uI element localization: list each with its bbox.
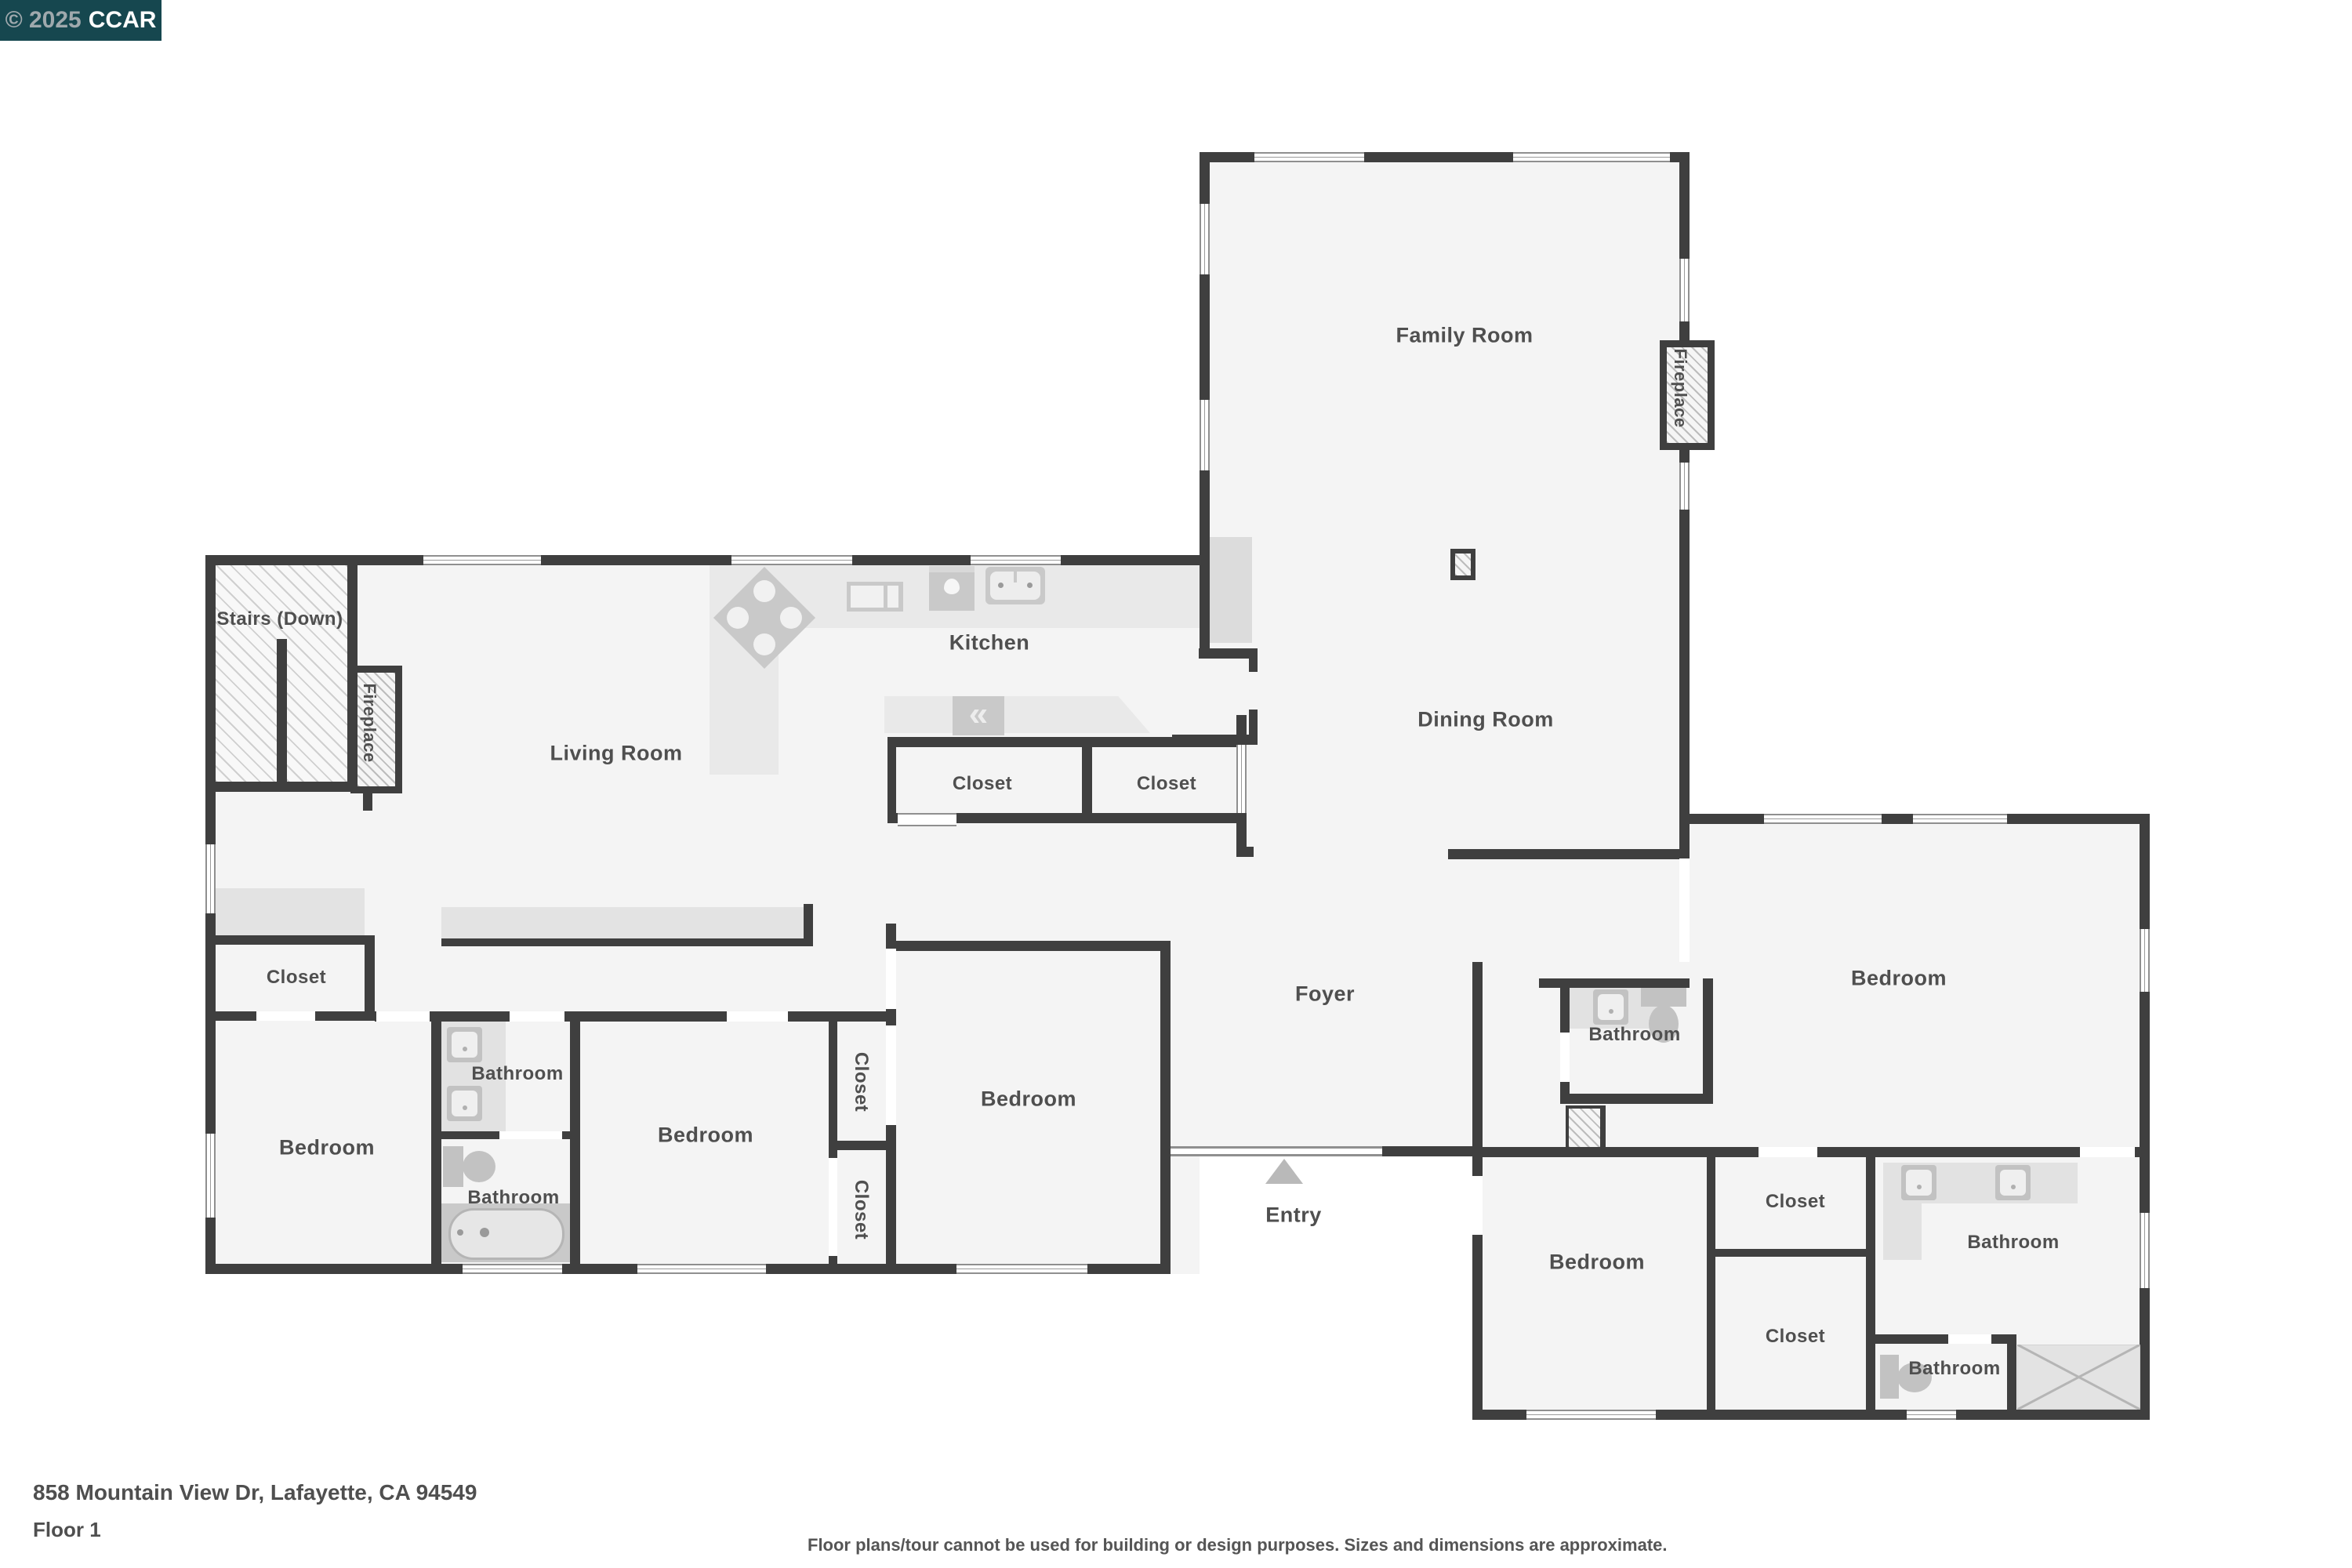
refrigerator-icon <box>1210 537 1252 643</box>
sink-icon <box>1995 1165 2031 1200</box>
wall <box>887 737 896 823</box>
room-label-closet-v1: Closet <box>850 1052 872 1112</box>
wall <box>570 1011 580 1274</box>
wall <box>2007 1334 2016 1410</box>
room-label-foyer: Foyer <box>1295 982 1355 1007</box>
microwave-icon <box>847 582 903 612</box>
room-label-bedroom-center: Bedroom <box>981 1087 1076 1112</box>
sink-icon <box>1901 1165 1936 1200</box>
room-label-dining-room: Dining Room <box>1417 708 1553 732</box>
room-label-stairs: Stairs (Down) <box>216 608 343 630</box>
wall <box>365 935 375 1021</box>
chase-hatch <box>1566 1105 1603 1151</box>
room-label-closet-r1: Closet <box>1766 1191 1825 1213</box>
room-label-closet-left: Closet <box>267 967 326 989</box>
wall <box>1382 1146 1482 1156</box>
watermark-copyright: © 2025 <box>5 7 82 34</box>
shower-icon <box>2017 1345 2140 1410</box>
entry-threshold <box>1171 1146 1382 1156</box>
room-label-closet-hall-2: Closet <box>1137 773 1196 795</box>
watermark-badge: © 2025 CCAR <box>0 0 162 41</box>
room-label-bedroom-right: Bedroom <box>1851 967 1947 991</box>
wall <box>2140 814 2150 1419</box>
wall <box>431 1011 441 1274</box>
wall <box>205 782 358 792</box>
wall <box>1715 1249 1875 1257</box>
range-hood-chevrons-icon: « <box>953 696 1004 735</box>
wall <box>887 737 1247 747</box>
wall <box>1236 847 1254 857</box>
island-counter <box>884 696 1150 733</box>
sink-icon <box>447 1086 482 1121</box>
bathtub-basin <box>448 1208 564 1260</box>
room-label-closet-r2: Closet <box>1766 1326 1825 1348</box>
room-label-bathroom-small: Bathroom <box>1908 1358 2000 1380</box>
floor-foyer <box>813 823 1483 1146</box>
label-fireplace-family: Fireplace <box>1670 348 1690 427</box>
wall <box>804 904 813 946</box>
room-label-closet-hall-1: Closet <box>953 773 1012 795</box>
entry-direction-icon <box>1265 1159 1303 1184</box>
sink-icon <box>447 1027 482 1062</box>
room-label-bedroom-left: Bedroom <box>279 1136 375 1160</box>
wall <box>1448 849 1690 859</box>
wall <box>886 941 1171 951</box>
room-label-closet-v2: Closet <box>850 1180 872 1240</box>
address-text: 858 Mountain View Dr, Lafayette, CA 9454… <box>33 1480 477 1505</box>
sink-icon <box>1593 989 1628 1025</box>
wall <box>1560 1094 1713 1104</box>
room-label-bathroom-foyer: Bathroom <box>1588 1024 1680 1046</box>
kitchen-sink-icon <box>985 567 1045 604</box>
room-label-bathroom-big: Bathroom <box>1967 1232 2059 1254</box>
wall <box>205 935 375 945</box>
wall <box>1249 648 1258 672</box>
toilet-bowl-icon <box>463 1151 495 1182</box>
wall <box>1707 1152 1715 1410</box>
watermark-org: CCAR <box>89 7 157 34</box>
wall <box>375 1011 896 1022</box>
room-label-bathroom-1: Bathroom <box>471 1063 563 1085</box>
label-fireplace-living: Fireplace <box>359 683 379 762</box>
hall-counter-long <box>441 907 804 938</box>
toilet-icon <box>1880 1355 1899 1399</box>
wall <box>441 938 813 946</box>
room-label-family-room: Family Room <box>1396 324 1533 348</box>
room-label-entry: Entry <box>1265 1203 1322 1228</box>
room-label-bedroom-middle: Bedroom <box>658 1123 753 1148</box>
room-label-living-room: Living Room <box>550 742 683 766</box>
room-label-bedroom-bottom-right: Bedroom <box>1549 1250 1645 1275</box>
dishwasher-icon <box>929 566 975 611</box>
room-label-kitchen: Kitchen <box>949 631 1030 655</box>
room-label-bathroom-2: Bathroom <box>467 1187 559 1209</box>
wall <box>1160 941 1171 1274</box>
disclaimer-text: Floor plans/tour cannot be used for buil… <box>808 1535 1668 1555</box>
wall <box>1875 1334 2016 1344</box>
wall <box>837 1141 886 1150</box>
vanity <box>1883 1202 1922 1260</box>
wall <box>1703 978 1713 1104</box>
wall <box>1082 737 1092 823</box>
closet-counter-left <box>209 888 365 935</box>
toilet-icon <box>1641 988 1686 1007</box>
floor-plan: « <box>0 0 2352 1568</box>
floor-text: Floor 1 <box>33 1518 101 1542</box>
wall <box>1866 1152 1875 1410</box>
toilet-icon <box>443 1146 463 1187</box>
flue-box <box>1450 549 1475 580</box>
